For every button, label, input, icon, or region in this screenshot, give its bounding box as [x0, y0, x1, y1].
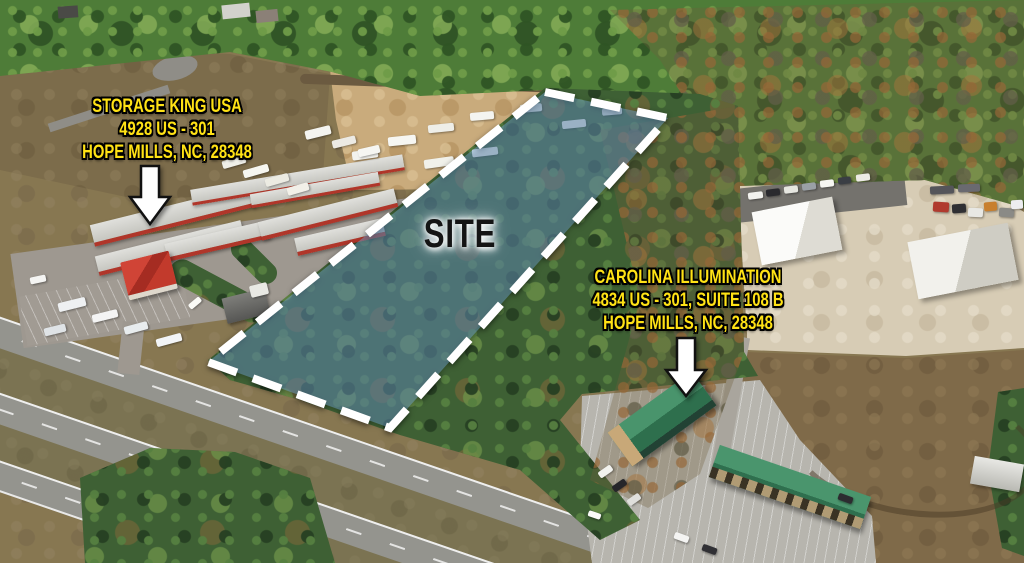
carolina-city: HOPE MILLS, NC, 28348 — [585, 312, 791, 335]
aerial-site-map: STORAGE KING USA 4928 US - 301 HOPE MILL… — [0, 0, 1024, 563]
storage-king-address: 4928 US - 301 — [65, 118, 269, 141]
house-roof — [221, 3, 250, 20]
storage-king-label: STORAGE KING USA 4928 US - 301 HOPE MILL… — [36, 95, 298, 164]
site-label: SITE — [393, 212, 527, 257]
shipping-container — [968, 208, 983, 218]
shipping-container — [984, 201, 998, 211]
house-roof — [58, 5, 79, 18]
truck-trailer — [930, 185, 954, 194]
shipping-container — [933, 201, 950, 212]
truck-trailer — [958, 184, 980, 193]
site-label-text: SITE — [408, 212, 513, 257]
shipping-container — [1011, 200, 1023, 210]
house-roof — [255, 9, 278, 23]
storage-king-name: STORAGE KING USA — [65, 95, 269, 118]
shipping-container — [952, 204, 967, 214]
carolina-address: 4834 US - 301, SUITE 108 B — [585, 289, 791, 312]
aerial-photo-background — [0, 0, 1024, 563]
storage-king-city: HOPE MILLS, NC, 28348 — [65, 141, 269, 164]
carolina-illumination-label: CAROLINA ILLUMINATION 4834 US - 301, SUI… — [556, 266, 820, 335]
carolina-name: CAROLINA ILLUMINATION — [585, 266, 791, 289]
